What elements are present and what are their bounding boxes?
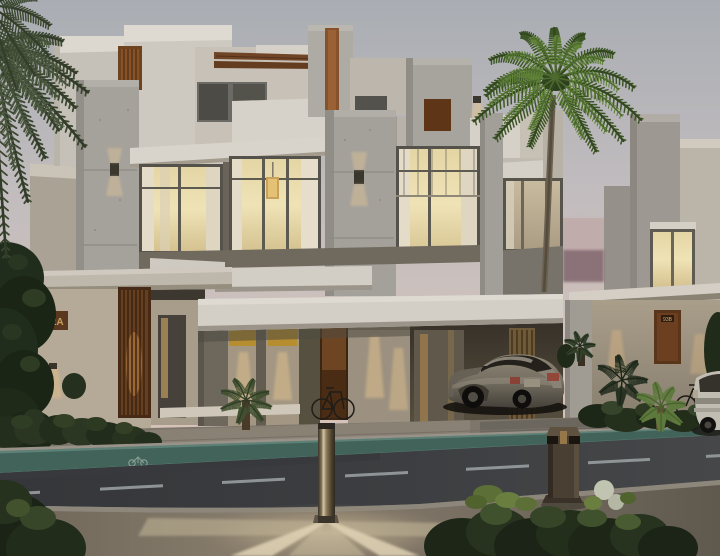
svg-text:93B: 93B (663, 317, 673, 323)
